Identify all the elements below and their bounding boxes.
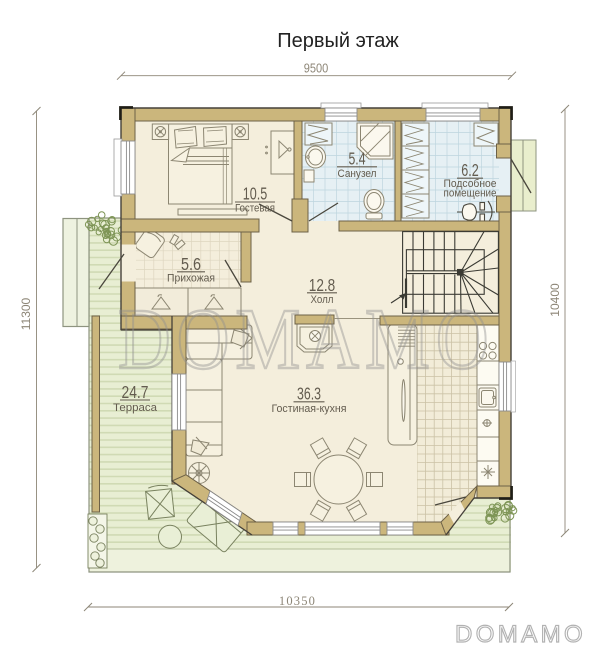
svg-text:помещение: помещение <box>444 188 497 200</box>
svg-text:Гостевая: Гостевая <box>235 203 275 215</box>
svg-text:5.6: 5.6 <box>181 254 201 274</box>
svg-text:Терраса: Терраса <box>113 402 158 414</box>
svg-text:Прихожая: Прихожая <box>167 273 215 285</box>
svg-text:9500: 9500 <box>304 62 329 76</box>
svg-text:10.5: 10.5 <box>243 184 268 204</box>
svg-text:10350: 10350 <box>279 594 316 608</box>
svg-text:DOMAMO: DOMAMO <box>118 292 495 387</box>
svg-text:5.4: 5.4 <box>349 149 366 169</box>
svg-text:Первый этаж: Первый этаж <box>277 30 399 52</box>
svg-text:11300: 11300 <box>19 297 33 330</box>
svg-text:Санузел: Санузел <box>338 168 377 180</box>
svg-text:6.2: 6.2 <box>461 160 479 180</box>
svg-text:10400: 10400 <box>548 283 562 317</box>
svg-text:Гостиная-кухня: Гостиная-кухня <box>272 403 347 415</box>
svg-text:DOMAMO: DOMAMO <box>455 621 586 648</box>
